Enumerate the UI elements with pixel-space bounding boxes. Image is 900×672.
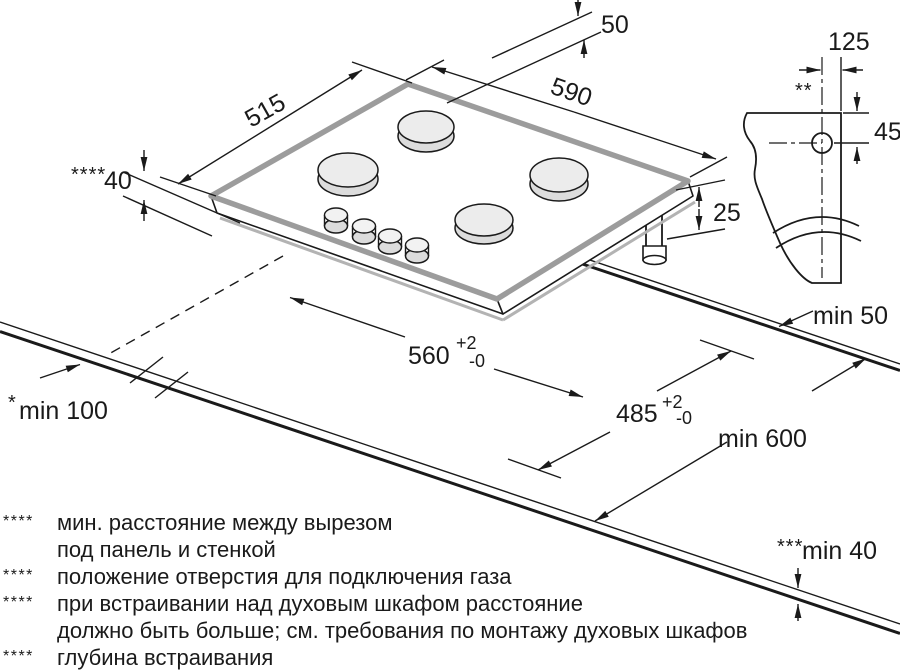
dim-515-label: 515 (240, 88, 290, 133)
dim-560-tol-plus: +2 (456, 333, 477, 353)
burner-left (318, 153, 378, 196)
break-line-1 (773, 217, 859, 233)
dim-worktop-depth: min 600 (595, 359, 866, 522)
dimension-line (494, 369, 583, 397)
dim-560-label: 560 (408, 342, 450, 370)
footnote-row: **** положение отверстия для подключения… (0, 563, 770, 590)
dim-min100-label: min 100 (19, 397, 108, 425)
control-knob-1 (325, 208, 348, 233)
control-knob-4 (406, 238, 429, 263)
dimension-arrow (779, 311, 813, 327)
footnote-text-line: положение отверстия для подключения газа (57, 563, 770, 590)
dim-side-clearance: * min 100 (8, 365, 108, 426)
dim-cutout-width: 560 +2 -0 (290, 298, 583, 398)
dim-40-label: 40 (104, 167, 132, 195)
footnote-text-line: под панель и стенкой (57, 536, 770, 563)
dim-min100-marker: * (8, 392, 17, 414)
dim-45-label: 45 (874, 118, 900, 146)
footnote-row: **** глубина встраивания (0, 644, 770, 671)
dimension-line (812, 359, 866, 392)
dim-min50-label: min 50 (813, 302, 888, 330)
dim-burner-rear-offset: 50 (447, 0, 629, 103)
dimension-line (290, 298, 405, 338)
dim-40-marker: **** (71, 164, 106, 186)
dim-rear-clearance: min 50 (779, 302, 888, 330)
extension-line (123, 196, 212, 236)
hob-isometric-view (211, 84, 695, 320)
dim-cutout-depth: 485 +2 -0 (538, 351, 731, 470)
footnote-marker: **** (0, 590, 57, 612)
hob-projection-dashed-line (107, 256, 283, 355)
panel-section-outline (744, 113, 841, 283)
dim-125-label: 125 (828, 28, 870, 56)
burner-back (398, 111, 454, 152)
dim-25-label: 25 (713, 199, 741, 227)
dim-min40-label: min 40 (802, 537, 877, 565)
burner-front (455, 204, 513, 244)
control-knob-3 (379, 229, 402, 254)
break-line-2 (776, 232, 861, 248)
footnotes: **** мин. расстояние между вырезом под п… (0, 509, 770, 671)
gas-connection-detail-view: 125 ** 45 (744, 28, 900, 283)
dimension-line (538, 432, 610, 470)
control-knob-2 (353, 219, 376, 244)
installation-diagram-page: 50 515 590 **** 40 25 560 +2 (0, 0, 900, 672)
extension-line (160, 177, 216, 196)
dim-485-tol-minus: -0 (676, 408, 692, 428)
footnote-marker: **** (0, 509, 57, 531)
extension-line (667, 229, 725, 239)
footnote-marker: **** (0, 563, 57, 585)
footnote-text: положение отверстия для подключения газа (57, 563, 770, 590)
extension-line (352, 62, 412, 83)
dim-min40-marker: *** (777, 536, 803, 558)
footnote-row: **** мин. расстояние между вырезом под п… (0, 509, 770, 563)
footnote-text: мин. расстояние между вырезом под панель… (57, 509, 770, 563)
footnote-text-line: должно быть больше; см. требования по мо… (57, 617, 770, 644)
dimension-line (657, 351, 731, 391)
footnote-marker: **** (0, 644, 57, 666)
dim-min600-label: min 600 (718, 425, 807, 453)
extension-line (406, 60, 444, 80)
dimension-line (492, 12, 592, 58)
footnote-text: при встраивании над духовым шкафом расст… (57, 590, 770, 644)
dim-50-label: 50 (601, 11, 629, 39)
footnote-text: глубина встраивания (57, 644, 770, 671)
footnote-row: **** при встраивании над духовым шкафом … (0, 590, 770, 644)
dimension-arrow (40, 365, 80, 379)
cutout-depth-tick-rear (700, 340, 754, 359)
extension-line (690, 157, 727, 177)
dim-485-label: 485 (616, 400, 658, 428)
gas-hole-footnote-marker: ** (795, 80, 813, 102)
burner-right (530, 158, 588, 201)
footnote-text-line: при встраивании над духовым шкафом расст… (57, 590, 770, 617)
footnote-text-line: мин. расстояние между вырезом (57, 509, 770, 536)
dim-560-tol-minus: -0 (469, 351, 485, 371)
footnote-text-line: глубина встраивания (57, 644, 770, 671)
